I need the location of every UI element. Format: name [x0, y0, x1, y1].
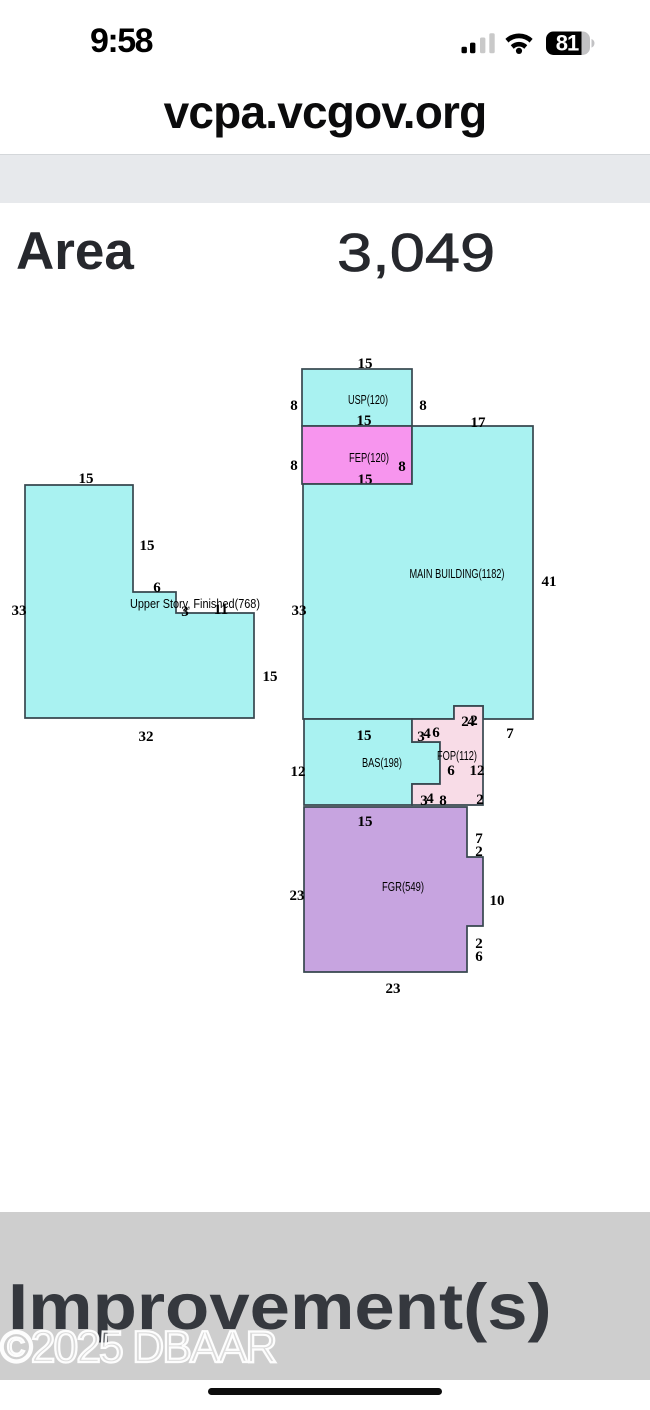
svg-text:2: 2: [470, 713, 478, 729]
svg-text:15: 15: [79, 471, 94, 487]
svg-text:8: 8: [290, 398, 298, 414]
svg-text:FGR(549): FGR(549): [382, 880, 424, 894]
svg-text:15: 15: [358, 814, 373, 830]
svg-text:10: 10: [490, 893, 505, 909]
svg-text:8: 8: [290, 458, 298, 474]
svg-text:6: 6: [432, 725, 440, 741]
svg-text:12: 12: [291, 764, 306, 780]
svg-text:12: 12: [470, 763, 485, 779]
svg-text:FOP(112): FOP(112): [437, 749, 477, 763]
svg-text:23: 23: [386, 981, 401, 997]
svg-text:33: 33: [292, 603, 307, 619]
svg-text:8: 8: [419, 398, 427, 414]
svg-text:23: 23: [290, 888, 305, 904]
svg-text:8: 8: [398, 459, 406, 475]
svg-text:33: 33: [12, 603, 27, 619]
svg-text:3: 3: [181, 604, 189, 620]
svg-text:2: 2: [476, 792, 484, 808]
svg-text:FEP(120): FEP(120): [349, 451, 389, 465]
svg-text:6: 6: [153, 580, 161, 596]
svg-text:Upper Story, Finished(768): Upper Story, Finished(768): [130, 597, 260, 611]
svg-text:15: 15: [358, 356, 373, 372]
svg-text:15: 15: [263, 669, 278, 685]
svg-text:USP(120): USP(120): [348, 393, 388, 407]
svg-text:32: 32: [139, 729, 154, 745]
svg-text:41: 41: [542, 574, 557, 590]
svg-text:15: 15: [140, 538, 155, 554]
svg-text:15: 15: [357, 728, 372, 744]
svg-text:7: 7: [506, 726, 514, 742]
svg-text:4: 4: [426, 791, 434, 807]
svg-text:6: 6: [475, 949, 483, 965]
svg-text:BAS(198): BAS(198): [362, 756, 402, 770]
svg-text:MAIN BUILDING(1182): MAIN BUILDING(1182): [410, 567, 505, 581]
svg-text:6: 6: [447, 763, 455, 779]
svg-text:2: 2: [475, 844, 483, 860]
svg-text:15: 15: [357, 413, 372, 429]
svg-text:17: 17: [471, 415, 487, 431]
svg-text:4: 4: [423, 726, 431, 742]
svg-text:11: 11: [214, 602, 228, 618]
